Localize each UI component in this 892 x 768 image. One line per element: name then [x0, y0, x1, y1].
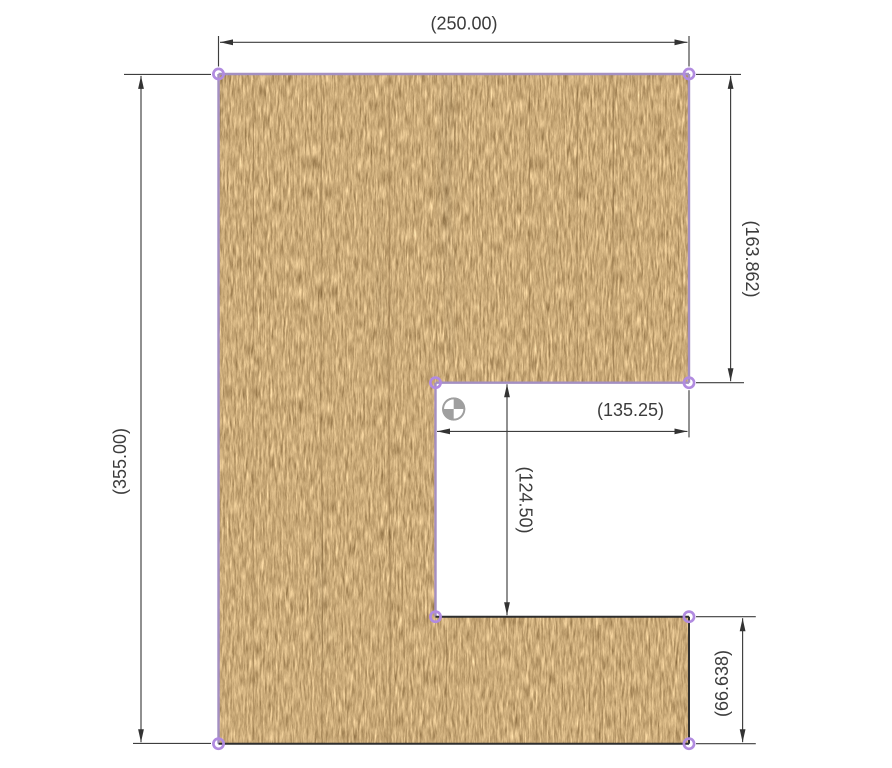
svg-text:(66.638): (66.638) [712, 650, 732, 717]
svg-text:(135.25): (135.25) [597, 400, 664, 420]
svg-text:(124.50): (124.50) [516, 466, 536, 533]
svg-text:(163.862): (163.862) [742, 220, 762, 297]
svg-text:(355.00): (355.00) [110, 428, 130, 495]
svg-text:(250.00): (250.00) [430, 13, 497, 33]
